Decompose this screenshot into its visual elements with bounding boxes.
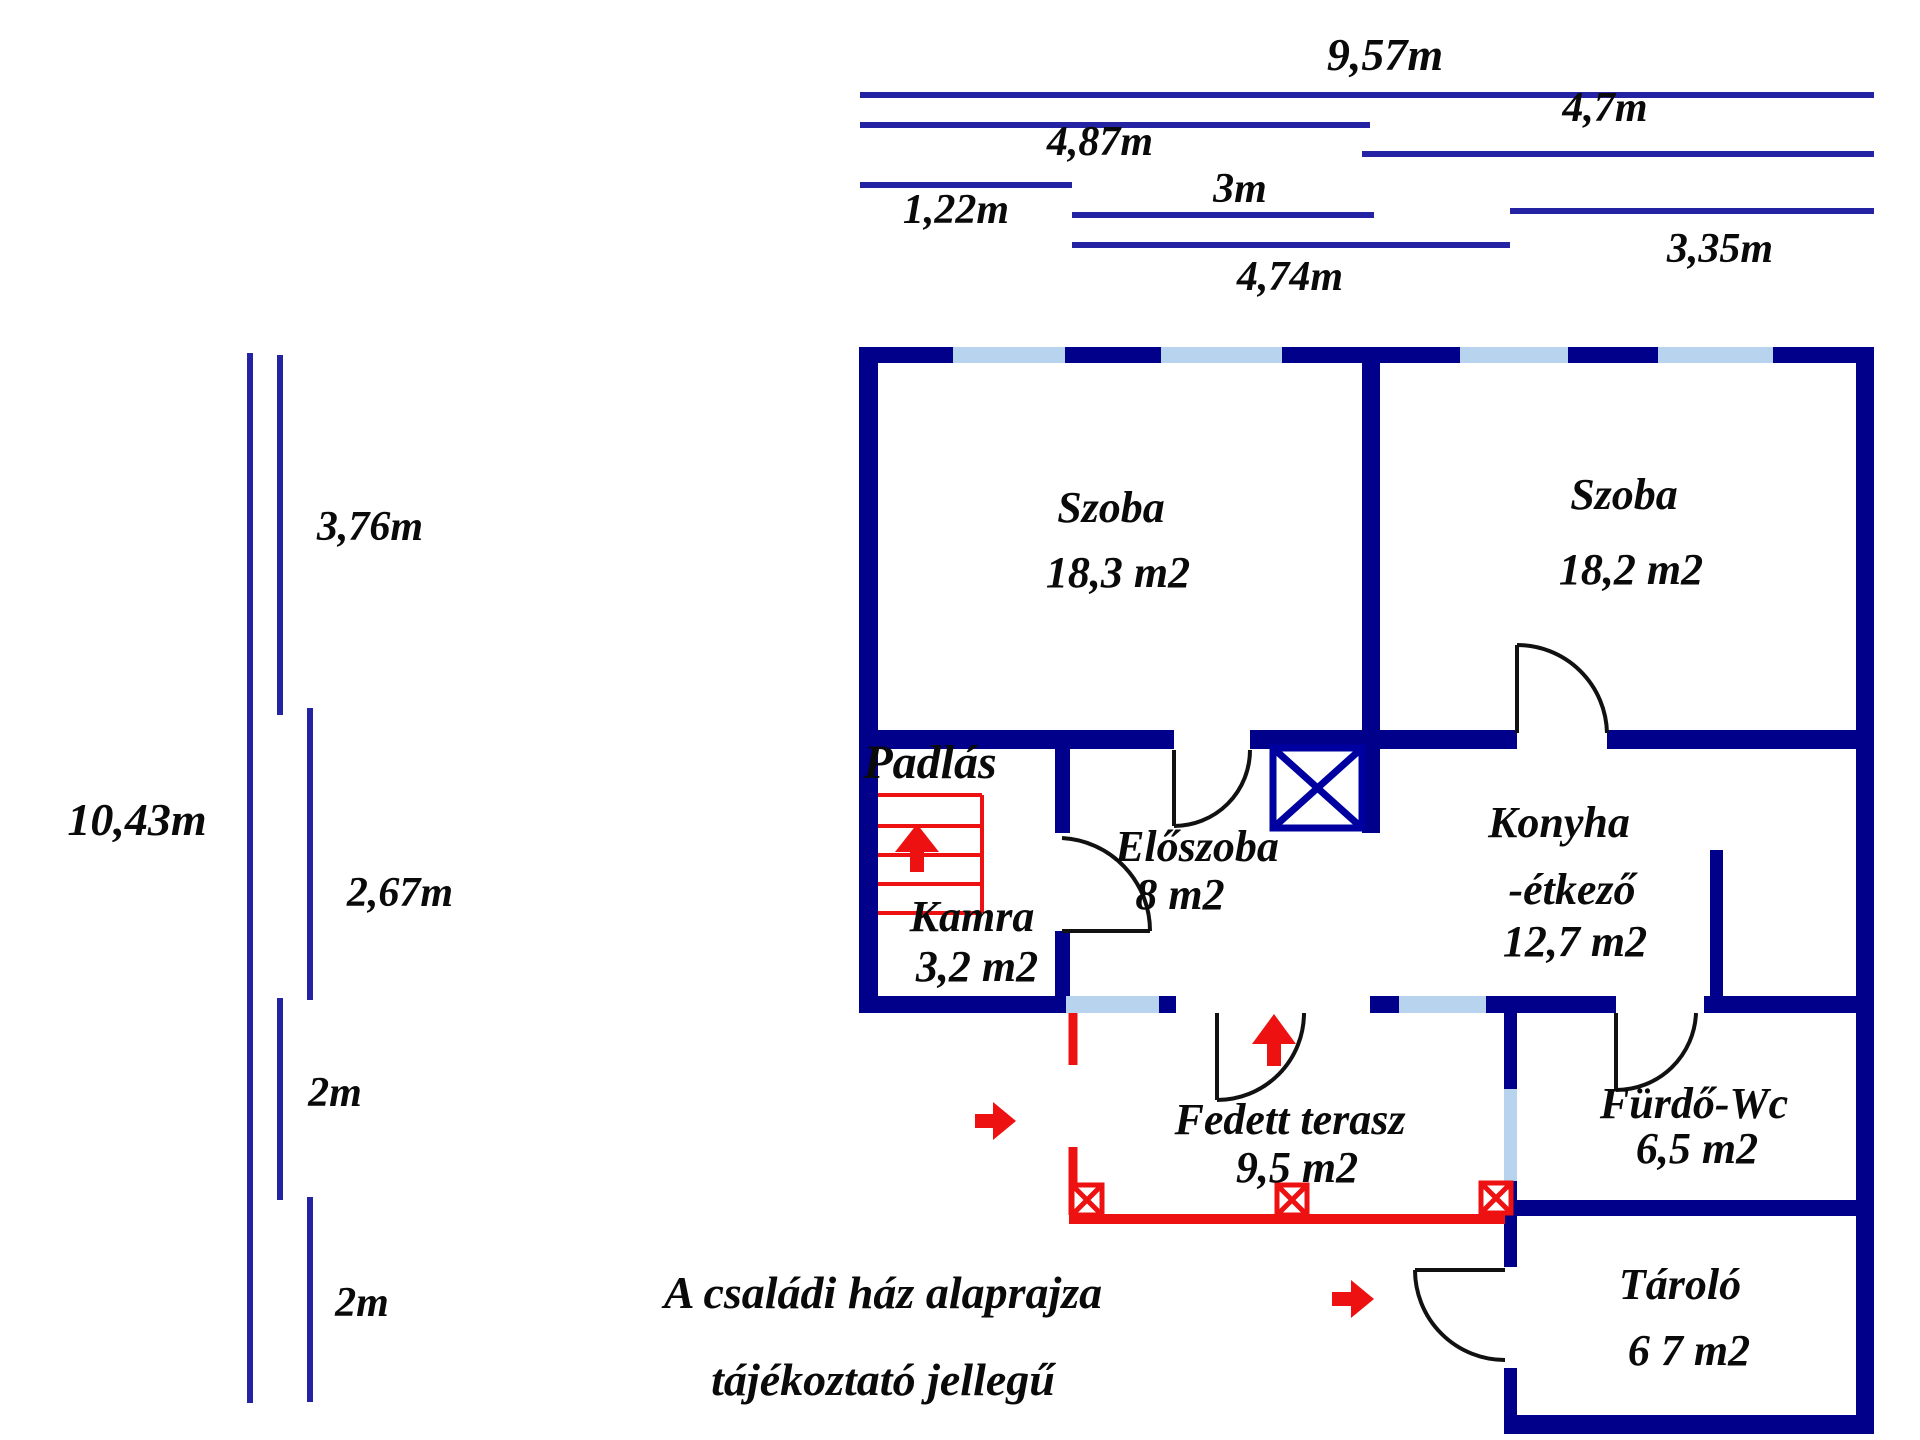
room-konyha-name2: -étkező: [1508, 868, 1635, 912]
room-szoba2-name: Szoba: [1570, 473, 1678, 517]
floor-plan: 9,57m 4,87m 4,7m 1,22m 3m 3,35m 4,74m 10…: [0, 0, 1920, 1440]
door-szoba2: [1517, 645, 1607, 733]
room-eloszoba-area: 8 m2: [1135, 873, 1224, 917]
room-konyha-name: Konyha: [1488, 801, 1630, 845]
room-konyha-area: 12,7 m2: [1503, 920, 1647, 964]
room-furdo-area: 6,5 m2: [1636, 1127, 1758, 1171]
door-szoba1: [1174, 750, 1250, 826]
room-szoba1-area: 18,3 m2: [1046, 551, 1190, 595]
door-terasz: [1217, 1013, 1304, 1100]
room-eloszoba-name: Előszoba: [1115, 825, 1279, 869]
window-x-box: [1273, 748, 1362, 828]
room-tarolo-name: Tároló: [1619, 1263, 1741, 1307]
caption-line1: A családi ház alaprajza: [664, 1270, 1102, 1316]
room-furdo-name: Fürdő-Wc: [1600, 1082, 1788, 1126]
room-kamra-area: 3,2 m2: [916, 945, 1038, 989]
room-terasz-name: Fedett terasz: [1175, 1098, 1406, 1142]
door-tarolo: [1415, 1270, 1505, 1360]
stairs-up-arrow-icon: [895, 824, 939, 872]
room-tarolo-area: 6 7 m2: [1628, 1329, 1750, 1373]
left-entry-right-arrow-icon: [975, 1102, 1016, 1140]
room-szoba2-area: 18,2 m2: [1559, 548, 1703, 592]
room-kamra-name: Kamra: [910, 895, 1035, 939]
plan-symbols: [0, 0, 1920, 1440]
room-szoba1-name: Szoba: [1057, 486, 1165, 530]
room-padlas-name: Padlás: [863, 739, 996, 787]
room-terasz-area: 9,5 m2: [1236, 1146, 1358, 1190]
tarolo-entry-right-arrow-icon: [1332, 1280, 1374, 1318]
caption-line2: tájékoztató jellegű: [711, 1357, 1055, 1403]
